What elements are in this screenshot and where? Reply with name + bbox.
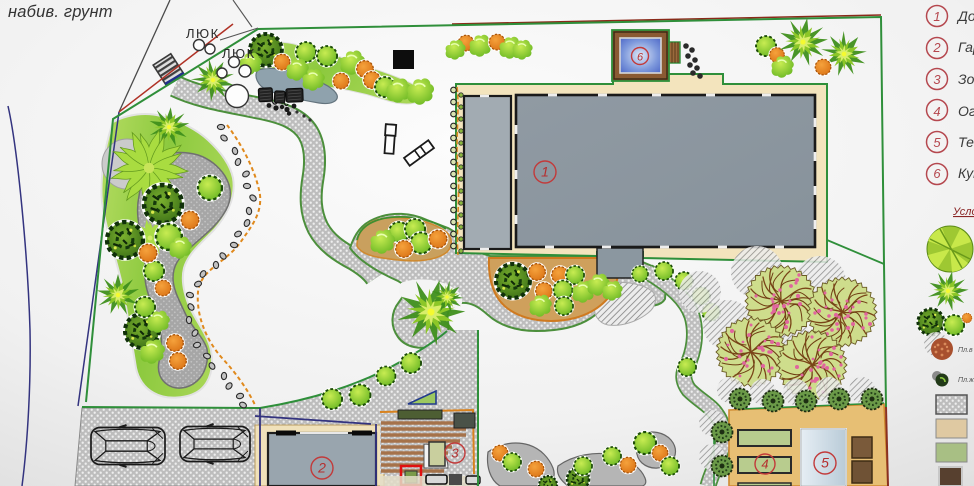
- svg-text:Теплица: Теплица: [958, 134, 974, 150]
- svg-text:Пл.ж: Пл.ж: [958, 377, 974, 384]
- svg-text:6: 6: [933, 166, 941, 181]
- svg-text:2: 2: [317, 460, 326, 476]
- svg-text:ЛЮК: ЛЮК: [186, 26, 220, 41]
- svg-text:Огород: Огород: [958, 103, 974, 119]
- svg-text:Пл.в: Пл.в: [958, 347, 973, 354]
- svg-text:4: 4: [933, 104, 940, 119]
- svg-text:Условные обозначения: Условные обозначения: [952, 206, 974, 218]
- svg-text:Гараж: Гараж: [958, 39, 974, 55]
- svg-text:4: 4: [761, 457, 768, 472]
- svg-text:5: 5: [821, 455, 829, 471]
- svg-text:Дом: Дом: [956, 8, 974, 24]
- svg-text:набив. грунт: набив. грунт: [8, 3, 113, 21]
- svg-text:1: 1: [541, 164, 549, 180]
- svg-text:3: 3: [451, 446, 459, 461]
- svg-text:Купель: Купель: [958, 165, 974, 181]
- svg-text:Зона отдыха: Зона отдыха: [958, 71, 974, 87]
- svg-text:5: 5: [933, 135, 941, 150]
- svg-text:6: 6: [637, 52, 644, 64]
- svg-text:3: 3: [933, 72, 941, 87]
- svg-text:1: 1: [933, 9, 940, 24]
- svg-text:2: 2: [932, 40, 941, 55]
